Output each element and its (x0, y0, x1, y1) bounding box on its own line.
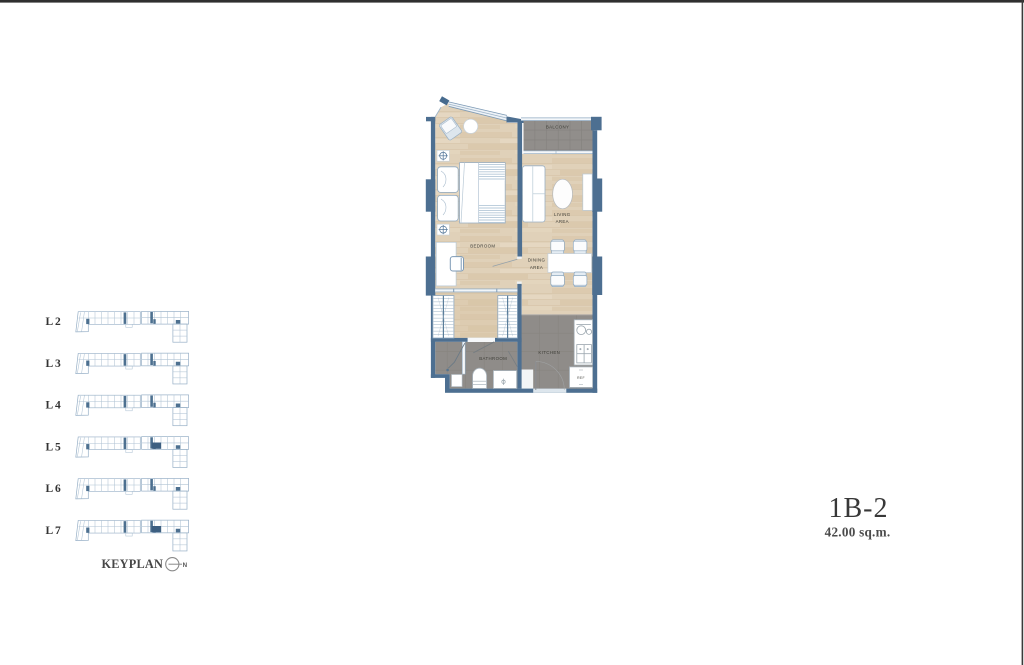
svg-text:L3: L3 (46, 358, 63, 370)
svg-text:L4: L4 (46, 400, 63, 412)
svg-text:N: N (183, 562, 188, 569)
svg-text:AREA: AREA (530, 265, 543, 270)
svg-text:DINING: DINING (528, 258, 546, 263)
svg-text:BEDROOM: BEDROOM (470, 244, 495, 249)
svg-text:AREA: AREA (556, 219, 569, 224)
svg-text:L2: L2 (46, 316, 63, 328)
svg-text:LIVING: LIVING (554, 212, 571, 217)
svg-text:L7: L7 (46, 525, 63, 537)
svg-text:REF: REF (577, 376, 585, 380)
svg-text:42.00 sq.m.: 42.00 sq.m. (825, 525, 891, 540)
svg-text:1B-2: 1B-2 (829, 493, 889, 524)
svg-text:L6: L6 (46, 483, 63, 495)
svg-text:KITCHEN: KITCHEN (538, 350, 560, 355)
svg-text:BALCONY: BALCONY (546, 124, 569, 129)
svg-text:KEYPLAN: KEYPLAN (102, 557, 164, 571)
svg-text:BATHROOM: BATHROOM (479, 356, 507, 361)
svg-text:L5: L5 (46, 441, 63, 453)
